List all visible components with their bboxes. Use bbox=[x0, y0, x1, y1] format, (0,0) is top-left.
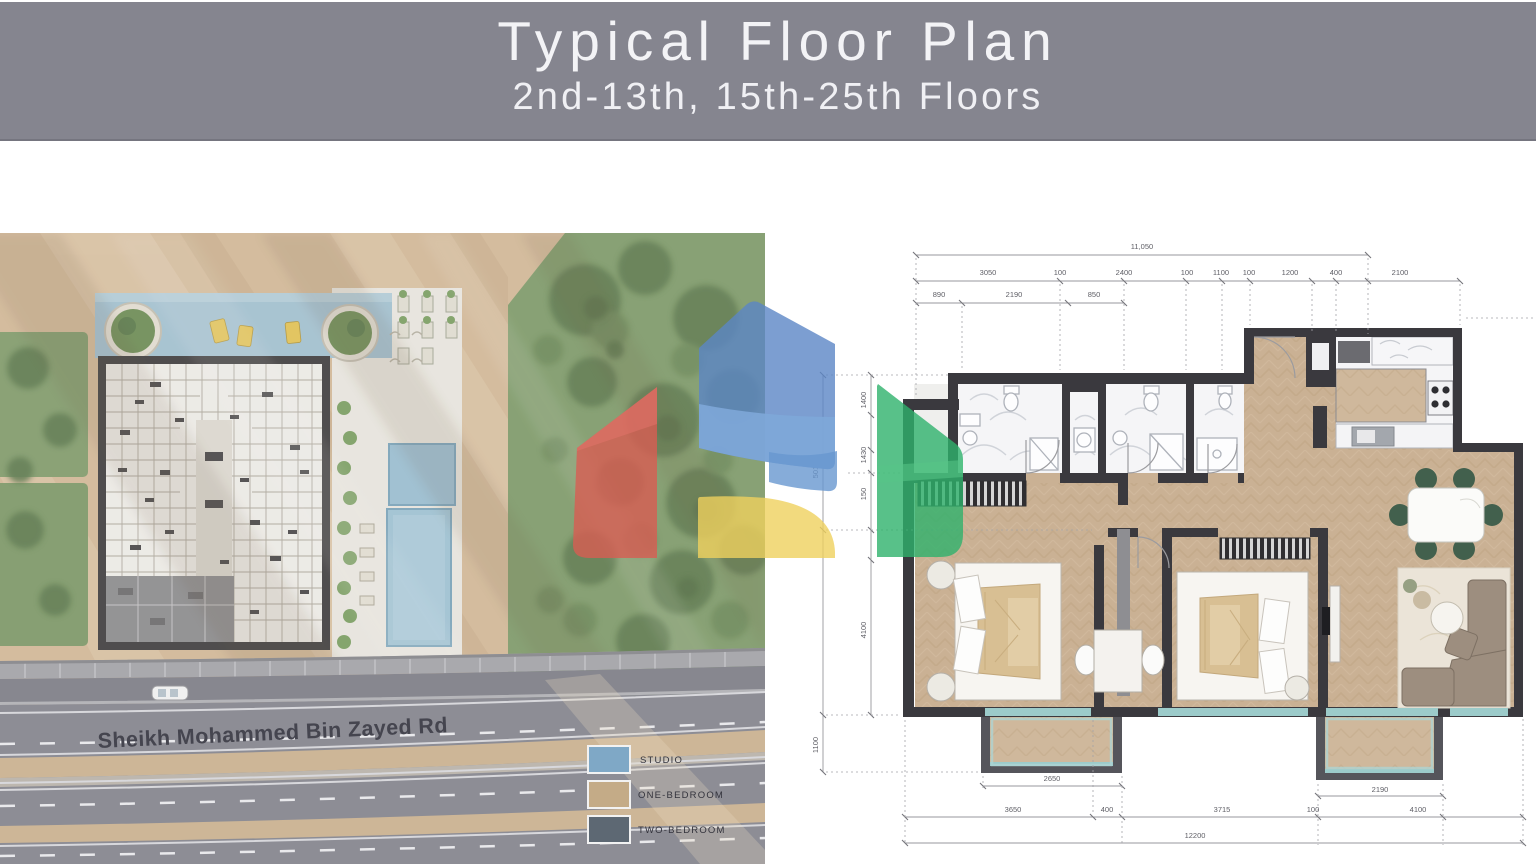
svg-text:1100: 1100 bbox=[1213, 268, 1229, 277]
svg-text:400: 400 bbox=[1330, 268, 1343, 277]
svg-text:100: 100 bbox=[1307, 805, 1320, 814]
svg-text:400: 400 bbox=[1101, 805, 1114, 814]
svg-text:100: 100 bbox=[1243, 268, 1256, 277]
svg-text:850: 850 bbox=[1088, 290, 1101, 299]
svg-text:1200: 1200 bbox=[1282, 268, 1299, 277]
svg-text:2650: 2650 bbox=[1044, 774, 1061, 783]
svg-text:TWO-BEDROOM: TWO-BEDROOM bbox=[638, 825, 726, 836]
svg-text:4100: 4100 bbox=[1410, 805, 1427, 814]
svg-text:2190: 2190 bbox=[1006, 290, 1023, 299]
svg-text:2400: 2400 bbox=[1116, 268, 1133, 277]
svg-text:3715: 3715 bbox=[1214, 805, 1231, 814]
svg-text:4100: 4100 bbox=[859, 622, 868, 639]
svg-text:2190: 2190 bbox=[1372, 785, 1389, 794]
svg-text:890: 890 bbox=[933, 290, 946, 299]
svg-text:150: 150 bbox=[859, 488, 868, 501]
svg-text:ONE-BEDROOM: ONE-BEDROOM bbox=[638, 790, 724, 801]
svg-text:100: 100 bbox=[1181, 268, 1194, 277]
svg-text:11,050: 11,050 bbox=[1131, 242, 1153, 251]
svg-text:1430: 1430 bbox=[859, 447, 868, 464]
svg-text:1400: 1400 bbox=[859, 392, 868, 409]
svg-text:100: 100 bbox=[1054, 268, 1067, 277]
svg-text:3650: 3650 bbox=[1005, 805, 1022, 814]
svg-text:3050: 3050 bbox=[980, 268, 997, 277]
svg-text:STUDIO: STUDIO bbox=[640, 755, 683, 766]
svg-text:12200: 12200 bbox=[1185, 831, 1206, 840]
svg-text:2100: 2100 bbox=[1392, 268, 1409, 277]
svg-text:1100: 1100 bbox=[811, 737, 820, 753]
